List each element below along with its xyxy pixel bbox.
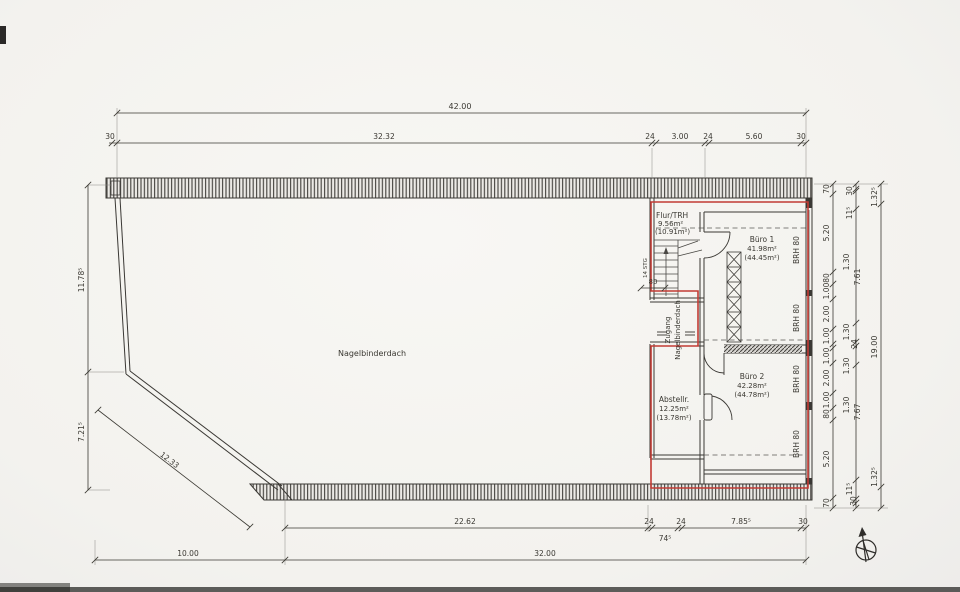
left-wall-inner <box>120 198 130 371</box>
dim-rightA-11: 70 <box>822 498 831 508</box>
dim-rightA-2: 80 <box>822 273 831 283</box>
dim-rightB-8: 7.67 <box>853 403 862 420</box>
diagonal-wall-outer <box>126 374 278 490</box>
divider-wall-hatch <box>724 345 802 353</box>
room-labels: Flur/TRH 9.56m² (10.91m²) Büro 1 41.98m²… <box>338 211 801 458</box>
floor-plan-drawing: Flur/TRH 9.56m² (10.91m²) Büro 1 41.98m²… <box>0 0 960 592</box>
dim-rightB-1: 11⁵ <box>845 207 854 220</box>
dim-rightC-1: 19.00 <box>870 336 879 359</box>
dim-rightB-10: 30 <box>849 496 858 506</box>
perimeter-walls <box>106 178 812 500</box>
dim-rightB-5: 24 <box>850 339 859 349</box>
dim-rightA-10: 5.20 <box>822 450 831 467</box>
dim-rightA-8: 1.00 <box>822 391 831 408</box>
dim-top-total: 42.00 <box>449 102 472 111</box>
dim-rightB-0: 30 <box>845 186 854 196</box>
dim-rightB-2: 1.30 <box>842 253 851 270</box>
room-area-abstell: 12.25m² <box>659 405 689 413</box>
door-arc-abstellraum <box>712 396 732 420</box>
brh-label-4: BRH 80 <box>792 430 801 458</box>
dim-bottom-2: 24 <box>676 517 686 526</box>
dim-bottom-5: 30 <box>798 517 808 526</box>
dim-top-2: 24 <box>645 132 655 141</box>
room-name-buero2: Büro 2 <box>740 372 765 381</box>
dim-rightC-0: 1.32⁵ <box>870 187 879 207</box>
access-label-line2: Nagelbinderdach <box>674 300 682 360</box>
dim-diagonal: 12.33 <box>158 450 181 470</box>
door-leaf-abstellraum <box>704 394 712 420</box>
dim-bottom-total: 32.00 <box>534 549 556 558</box>
dim-opening-80: 80 <box>649 278 658 286</box>
dim-rightA-4: 2.00 <box>822 305 831 322</box>
dim-rightB-7: 1.30 <box>842 396 851 413</box>
dim-rightA-1: 5.20 <box>822 224 831 241</box>
dim-top-1: 32.32 <box>373 132 395 141</box>
dim-bottom-3: 74⁵ <box>659 534 672 543</box>
brh-label-2: BRH 80 <box>792 304 801 332</box>
room-name-flur: Flur/TRH <box>656 211 688 220</box>
room-area-gross-buero1: (44.45m²) <box>744 254 779 262</box>
room-area-gross-abstell: (13.78m²) <box>656 414 691 422</box>
bottom-wall <box>270 484 812 500</box>
brh-label-1: BRH 80 <box>792 236 801 264</box>
dim-top-6: 30 <box>796 132 806 141</box>
dim-rightB-4: 1.30 <box>842 323 851 340</box>
dim-rightA-9: 80 <box>822 409 831 419</box>
dim-rightA-5: 1.00 <box>822 327 831 344</box>
staircase <box>654 240 702 298</box>
dim-rightA-3: 1.00 <box>822 282 831 299</box>
diagonal-wall-inner <box>130 371 282 486</box>
scan-edge-bottom-left <box>0 583 70 592</box>
north-arrow-icon <box>856 527 876 562</box>
dim-bottom-4: 7.85⁵ <box>731 517 751 526</box>
dim-rightB-9: 11⁵ <box>845 483 854 496</box>
room-area-gross-buero2: (44.78m²) <box>734 391 769 399</box>
scan-edge-mark-left <box>0 26 6 44</box>
room-area-flur: 9.56m² <box>658 220 683 228</box>
dim-bottom-1: 24 <box>644 517 654 526</box>
dim-rightA-6: 1.00 <box>822 347 831 364</box>
dim-left-upper: 11.78⁵ <box>77 268 86 292</box>
scanned-floor-plan-sheet: Flur/TRH 9.56m² (10.91m²) Büro 1 41.98m²… <box>0 0 960 592</box>
top-wall <box>106 178 812 198</box>
dim-top-3: 3.00 <box>672 132 689 141</box>
stairs-label: 14 STG <box>643 258 649 278</box>
dim-top-5: 5.60 <box>746 132 763 141</box>
dim-top-4: 24 <box>703 132 713 141</box>
room-area-buero2: 42.28m² <box>737 382 767 390</box>
hall-label: Nagelbinderdach <box>338 349 406 358</box>
dim-left-lower: 7.21⁵ <box>77 422 86 442</box>
door-arc-buero2 <box>704 353 724 373</box>
room-area-buero1: 41.98m² <box>747 245 777 253</box>
dim-top-0: 30 <box>105 132 115 141</box>
dim-bottom-0: 22.62 <box>454 517 476 526</box>
dim-rightB-6: 1.30 <box>842 357 851 374</box>
dim-rightA-0: 70 <box>822 184 831 194</box>
brh-label-3: BRH 80 <box>792 365 801 393</box>
room-name-abstell: Abstellr. <box>659 395 689 404</box>
dim-rightB-3: 7.61 <box>853 268 862 285</box>
dim-rightA-7: 2.00 <box>822 369 831 386</box>
left-wall-outer <box>115 198 126 374</box>
dim-rightC-2: 1.32⁵ <box>870 467 879 487</box>
scan-edge-bottom <box>0 587 960 592</box>
door-arc-flur-buero1 <box>704 232 730 258</box>
room-area-gross-flur: (10.91m²) <box>655 228 690 236</box>
room-name-buero1: Büro 1 <box>750 235 775 244</box>
dim-bottom-left: 10.00 <box>177 549 199 558</box>
shaft-lattice <box>727 252 741 342</box>
access-label-line1: Zugang <box>664 317 672 344</box>
stair-direction-arrow <box>664 247 669 254</box>
